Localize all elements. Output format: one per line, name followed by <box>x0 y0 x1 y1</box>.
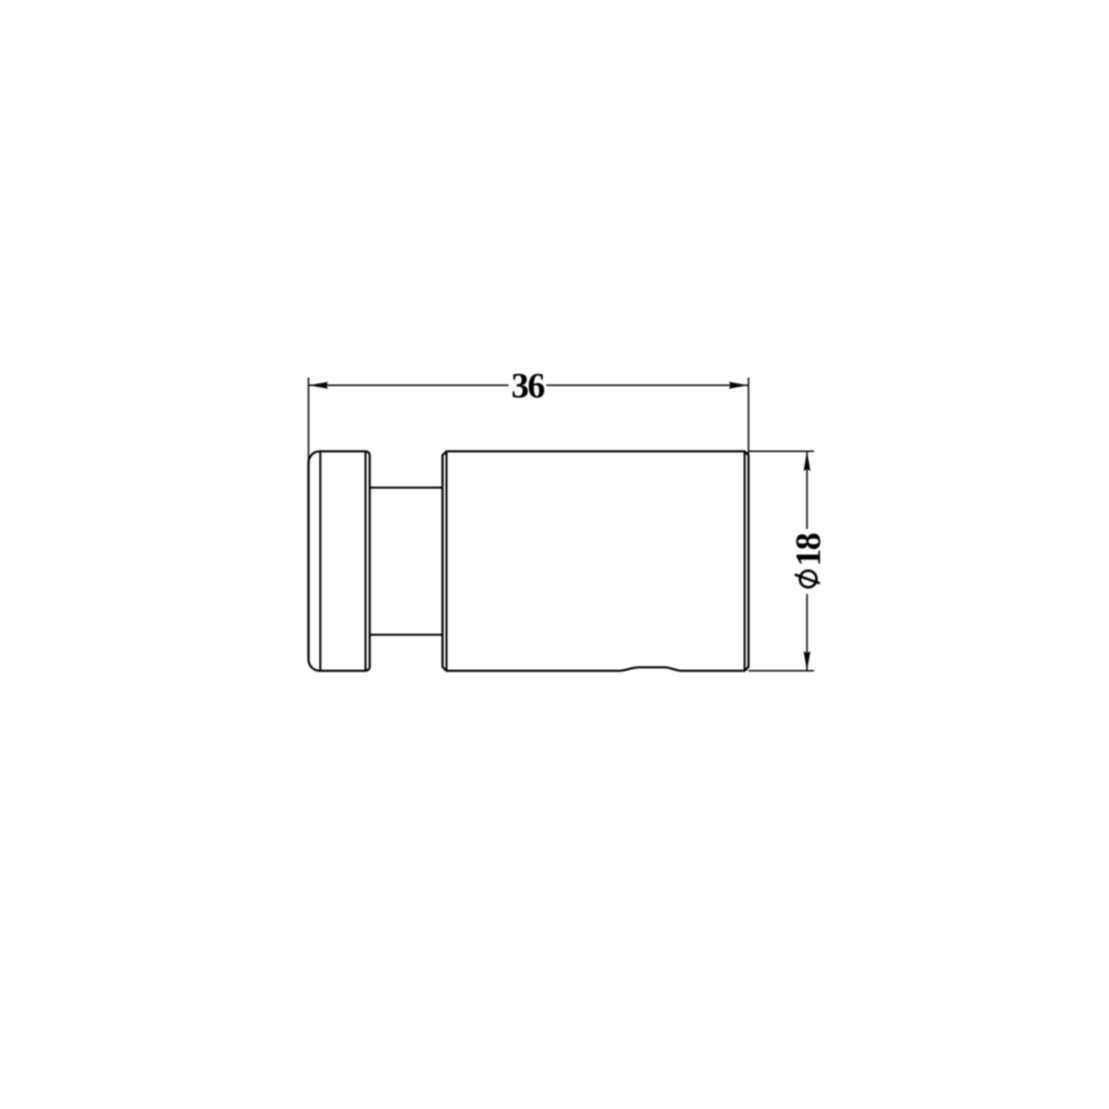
svg-text:18: 18 <box>788 533 828 566</box>
svg-text:36: 36 <box>511 366 544 406</box>
